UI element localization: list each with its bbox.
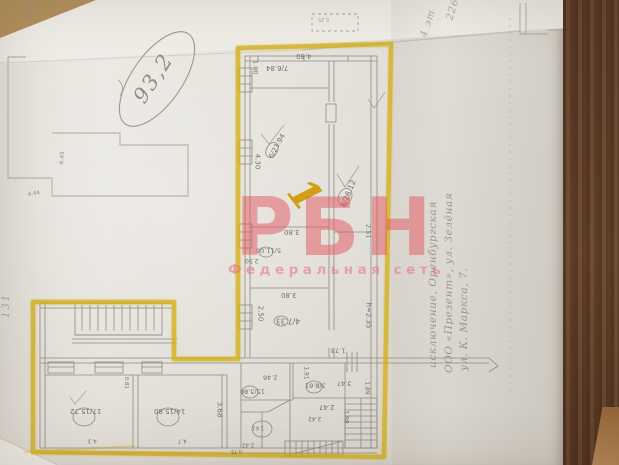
dimension-label: 1.98 (343, 410, 349, 423)
watermark-logo: РБН (235, 188, 437, 268)
dimension-label: 1.80 (252, 60, 259, 74)
dimension-label: 3.47 (337, 380, 351, 387)
dimension-label: 4.45 (59, 151, 66, 165)
dimension-label: 7/6.84 (266, 64, 288, 71)
dimension-label: 2.47 (319, 403, 335, 410)
dimension-label: 1.91 (303, 366, 309, 379)
dimension-label: 5.25 (318, 16, 329, 21)
dimension-label: 4/7.33 (276, 317, 300, 325)
dimension-label: 3/8.61 (305, 382, 326, 389)
dimension-label: 1.61 (252, 424, 264, 430)
dimension-label: 2.46 (263, 374, 277, 381)
dimension-label: 4.30 (253, 154, 260, 170)
dimension-label: 4.3 (88, 437, 97, 443)
dimension-label: 4.80 (296, 52, 312, 59)
dimension-label: 0.75 (231, 448, 242, 453)
dimension-label: 2.42 (242, 441, 254, 447)
dimension-label: 1.89 (364, 381, 370, 394)
dimension-label: 3.80 (281, 291, 297, 298)
dimension-label: h=2.35 (364, 303, 371, 329)
dimension-label: 17/15.72 (70, 407, 101, 414)
handwritten-side-note-line: ул. К. Маркса, 7. (458, 268, 470, 371)
dimension-label: 2.42 (308, 415, 321, 421)
dimension-label: 4.7 (178, 437, 187, 443)
dimension-label: 15/3.86 (240, 388, 265, 395)
handwritten-side-note-line: ООО «Презент», ул. Зелёная (443, 193, 455, 373)
dimension-label: 14/15.80 (154, 407, 185, 414)
dimension-label: 2.50 (256, 306, 263, 322)
dimension-label: 3.68 (215, 402, 222, 418)
dimension-label: 0.81 (122, 377, 128, 389)
dimension-label: 1.73 (331, 347, 345, 354)
floor-plan-photo: 4.801.807/6.844.306/23.948/26.123.805/11… (0, 0, 619, 465)
watermark-tagline: Федеральная сеть (228, 262, 445, 278)
handwritten-margin-note: 131 (1, 293, 12, 318)
